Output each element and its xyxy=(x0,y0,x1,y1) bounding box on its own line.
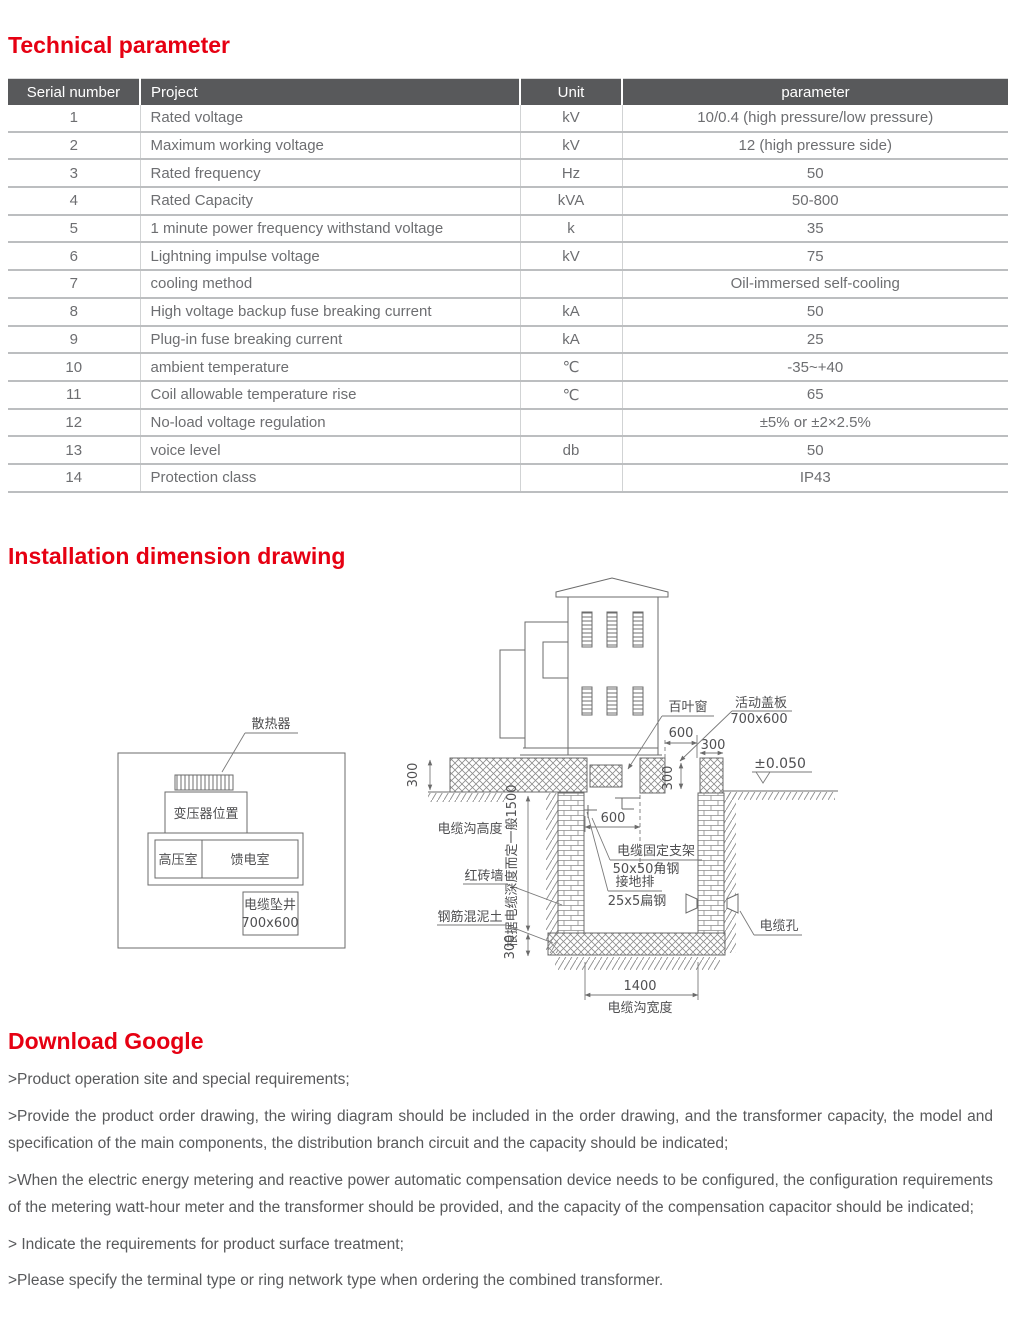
table-row: 14Protection classIP43 xyxy=(8,464,1008,492)
table-row: 11Coil allowable temperature rise℃65 xyxy=(8,381,1008,409)
label-louver: 百叶窗 xyxy=(668,699,707,715)
label-cable-well-size: 700x600 xyxy=(241,916,298,931)
table-cell: kA xyxy=(520,298,622,326)
table-cell: 35 xyxy=(622,215,1008,243)
label-cover-plate-size: 700x600 xyxy=(730,712,787,727)
table-cell: kV xyxy=(520,242,622,270)
table-cell: 10/0.4 (high pressure/low pressure) xyxy=(622,105,1008,132)
section-view-cabinet xyxy=(500,578,668,755)
parameter-table-body: 1Rated voltagekV10/0.4 (high pressure/lo… xyxy=(8,105,1008,492)
label-radiator: 散热器 xyxy=(251,717,290,732)
table-cell: voice level xyxy=(140,436,520,464)
document-page: Technical parameter Serial number Projec… xyxy=(0,0,1017,1331)
table-cell: 9 xyxy=(8,326,140,354)
table-cell: 50 xyxy=(622,298,1008,326)
level-triangle-icon xyxy=(756,772,770,783)
table-row: 9Plug-in fuse breaking currentkA25 xyxy=(8,326,1008,354)
table-cell: 2 xyxy=(8,132,140,160)
label-trench-height: 电缆沟高度 xyxy=(437,821,502,837)
label-cable-well: 电缆坠井 xyxy=(244,897,296,913)
table-cell: cooling method xyxy=(140,270,520,298)
cabinet-roof xyxy=(556,578,668,597)
table-cell: 4 xyxy=(8,187,140,215)
dim-300-slab: 300 xyxy=(406,763,421,788)
table-cell: db xyxy=(520,436,622,464)
table-cell: ℃ xyxy=(520,381,622,409)
concrete-floor xyxy=(548,933,725,955)
table-cell: ambient temperature xyxy=(140,353,520,381)
cabinet-vents xyxy=(582,612,643,715)
table-cell: 8 xyxy=(8,298,140,326)
label-ground-bar: 接地排 xyxy=(615,874,654,890)
dim-600-pit: 600 xyxy=(601,811,626,826)
dim-600-top: 600 xyxy=(669,726,694,741)
table-cell: 7 xyxy=(8,270,140,298)
table-cell: ±5% or ±2×2.5% xyxy=(622,409,1008,437)
table-header: Serial number Project Unit parameter xyxy=(8,79,1008,106)
table-row: 4Rated CapacitykVA50-800 xyxy=(8,187,1008,215)
col-project: Project xyxy=(140,79,520,106)
table-cell: 5 xyxy=(8,215,140,243)
label-cable-hole: 电缆孔 xyxy=(759,918,798,934)
label-depth-note: 根据电缆深度而定一般1500 xyxy=(504,784,520,947)
table-cell: 75 xyxy=(622,242,1008,270)
table-cell: 1 minute power frequency withstand volta… xyxy=(140,215,520,243)
table-cell: Protection class xyxy=(140,464,520,492)
table-cell: 50 xyxy=(622,159,1008,187)
label-red-brick-wall: 红砖墙 xyxy=(464,868,503,884)
dim-1400: 1400 xyxy=(623,979,656,994)
table-row: 12No-load voltage regulation±5% or ±2×2.… xyxy=(8,409,1008,437)
label-reinforced-concrete: 钢筋混泥土 xyxy=(437,909,502,925)
ground-hatch-bottom xyxy=(555,957,720,970)
col-serial-number: Serial number xyxy=(8,79,140,106)
note-paragraph: > Indicate the requirements for product … xyxy=(8,1231,993,1259)
technical-parameter-table: Serial number Project Unit parameter 1Ra… xyxy=(8,78,1008,493)
radiator-fins xyxy=(175,775,233,790)
label-feeder-room: 馈电室 xyxy=(230,852,269,868)
table-cell: kV xyxy=(520,105,622,132)
table-row: 13voice leveldb50 xyxy=(8,436,1008,464)
table-cell: 13 xyxy=(8,436,140,464)
slab-right-pillar xyxy=(700,758,723,793)
table-cell: Oil-immersed self-cooling xyxy=(622,270,1008,298)
col-parameter: parameter xyxy=(622,79,1008,106)
table-cell: No-load voltage regulation xyxy=(140,409,520,437)
brick-wall-right xyxy=(698,793,724,933)
label-cable-bracket: 电缆固定支架 xyxy=(617,843,695,859)
note-paragraph: >When the electric energy metering and r… xyxy=(8,1167,993,1222)
dim-300-floor: 300 xyxy=(503,935,518,960)
table-row: 8High voltage backup fuse breaking curre… xyxy=(8,298,1008,326)
table-row: 51 minute power frequency withstand volt… xyxy=(8,215,1008,243)
table-cell: Hz xyxy=(520,159,622,187)
col-unit: Unit xyxy=(520,79,622,106)
cable-hole-funnel-left xyxy=(686,894,697,913)
table-cell: 14 xyxy=(8,464,140,492)
table-cell: Coil allowable temperature rise xyxy=(140,381,520,409)
table-cell: Rated voltage xyxy=(140,105,520,132)
table-cell: ℃ xyxy=(520,353,622,381)
earth-strip-right xyxy=(724,793,736,953)
table-row: 1Rated voltagekV10/0.4 (high pressure/lo… xyxy=(8,105,1008,132)
section-view-slab: 300 600 300 百叶窗 活动盖板 700x600 300 ±0.050 xyxy=(406,696,838,802)
table-cell: 10 xyxy=(8,353,140,381)
table-cell: Rated frequency xyxy=(140,159,520,187)
table-row: 6Lightning impulse voltagekV75 xyxy=(8,242,1008,270)
section-title-download: Download Google xyxy=(8,1028,204,1055)
ground-hatch-left xyxy=(428,793,506,802)
table-cell: 1 xyxy=(8,105,140,132)
ordering-notes: >Product operation site and special requ… xyxy=(8,1066,993,1304)
section-title-technical: Technical parameter xyxy=(8,32,230,59)
table-cell xyxy=(520,270,622,298)
table-cell: k xyxy=(520,215,622,243)
note-paragraph: >Please specify the terminal type or rin… xyxy=(8,1267,993,1295)
table-cell: IP43 xyxy=(622,464,1008,492)
table-cell: Plug-in fuse breaking current xyxy=(140,326,520,354)
table-cell: 50-800 xyxy=(622,187,1008,215)
ground-hatch-right xyxy=(727,792,835,800)
table-row: 2Maximum working voltagekV12 (high press… xyxy=(8,132,1008,160)
louver-window xyxy=(590,765,622,787)
dim-300-right: 300 xyxy=(701,738,726,753)
table-row: 10ambient temperature℃-35~+40 xyxy=(8,353,1008,381)
table-cell: High voltage backup fuse breaking curren… xyxy=(140,298,520,326)
table-cell: kVA xyxy=(520,187,622,215)
table-cell: kA xyxy=(520,326,622,354)
table-row: 7cooling methodOil-immersed self-cooling xyxy=(8,270,1008,298)
table-cell: 65 xyxy=(622,381,1008,409)
brick-wall-left xyxy=(558,793,584,933)
section-view-pit: 600 电缆固定支架 50x50角钢 接地排 25x5扁钢 电缆沟高度 根据电缆… xyxy=(437,784,802,1016)
table-cell xyxy=(520,409,622,437)
table-cell: 25 xyxy=(622,326,1008,354)
section-title-installation: Installation dimension drawing xyxy=(8,543,345,570)
plan-view: 变压器位置 高压室 馈电室 电缆坠井 700x600 散热器 xyxy=(118,717,345,948)
table-cell: Maximum working voltage xyxy=(140,132,520,160)
note-paragraph: >Product operation site and special requ… xyxy=(8,1066,993,1094)
table-cell: 12 xyxy=(8,409,140,437)
label-trench-width: 电缆沟宽度 xyxy=(607,1000,672,1016)
cabinet-left-box xyxy=(500,650,525,738)
label-transformer-position: 变压器位置 xyxy=(173,806,238,822)
table-row: 3Rated frequencyHz50 xyxy=(8,159,1008,187)
label-level-mark: ±0.050 xyxy=(754,756,806,772)
table-cell: Rated Capacity xyxy=(140,187,520,215)
cabinet-panel xyxy=(543,642,568,678)
table-cell xyxy=(520,464,622,492)
earth-strip-left xyxy=(546,793,558,953)
label-hv-room: 高压室 xyxy=(158,852,197,868)
table-cell: 6 xyxy=(8,242,140,270)
table-cell: 11 xyxy=(8,381,140,409)
note-paragraph: >Provide the product order drawing, the … xyxy=(8,1103,993,1158)
label-cover-plate: 活动盖板 xyxy=(735,696,787,711)
label-ground-bar-spec: 25x5扁钢 xyxy=(608,894,667,909)
table-cell: 12 (high pressure side) xyxy=(622,132,1008,160)
installation-drawing: 变压器位置 高压室 馈电室 电缆坠井 700x600 散热器 xyxy=(0,570,1017,1025)
table-cell: -35~+40 xyxy=(622,353,1008,381)
table-cell: 3 xyxy=(8,159,140,187)
table-cell: 50 xyxy=(622,436,1008,464)
table-cell: Lightning impulse voltage xyxy=(140,242,520,270)
table-cell: kV xyxy=(520,132,622,160)
cabinet-mid-box xyxy=(525,622,568,748)
dim-300-opening: 300 xyxy=(661,766,676,791)
